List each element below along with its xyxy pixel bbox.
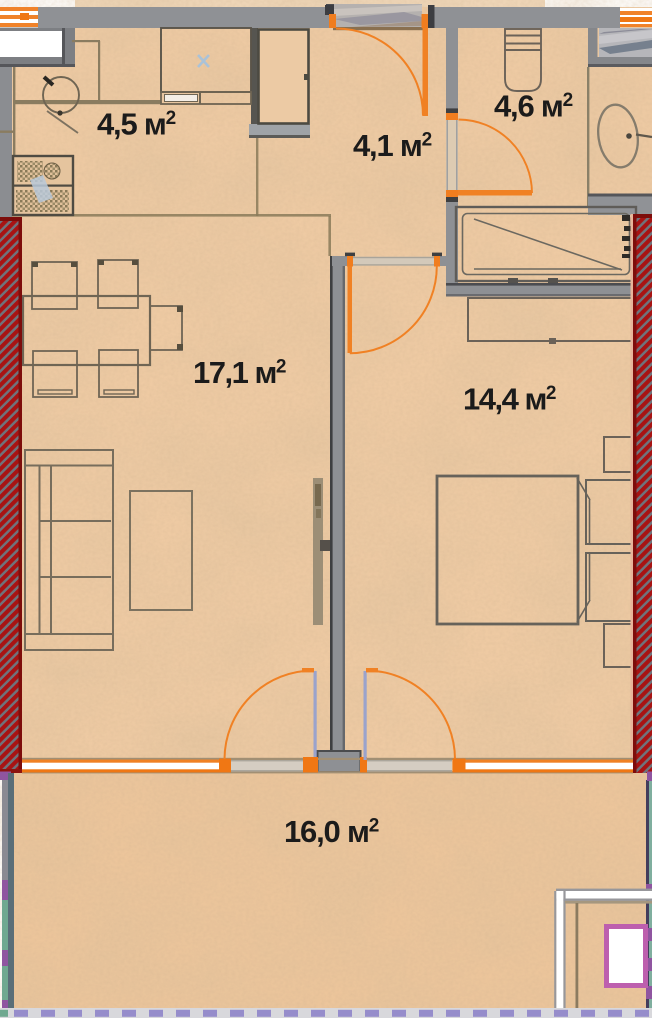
svg-text:16,0 м2: 16,0 м2	[284, 814, 379, 849]
svg-text:4,5 м2: 4,5 м2	[97, 107, 176, 142]
svg-text:4,6 м2: 4,6 м2	[494, 89, 573, 124]
svg-text:4,1 м2: 4,1 м2	[353, 128, 432, 163]
svg-text:17,1 м2: 17,1 м2	[193, 355, 286, 390]
svg-text:14,4 м2: 14,4 м2	[463, 382, 556, 417]
